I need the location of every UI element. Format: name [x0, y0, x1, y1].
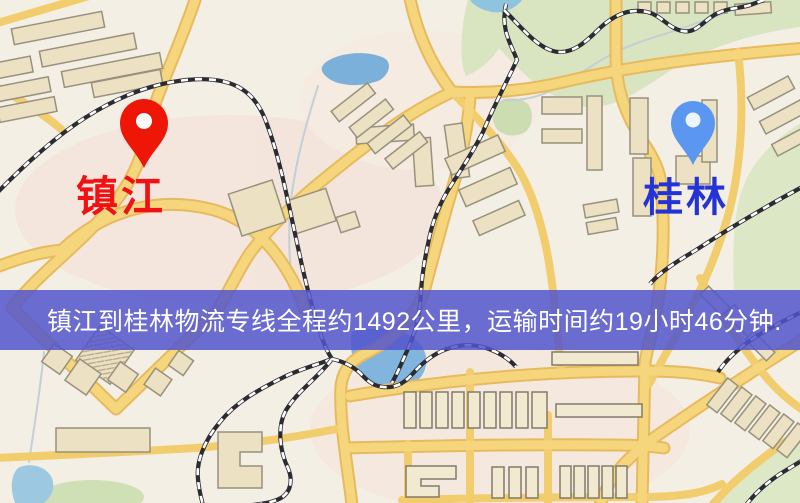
map-canvas [0, 0, 800, 503]
route-info-banner: 镇江到桂林物流专线全程约1492公里，运输时间约19小时46分钟. [0, 290, 800, 350]
park-small-center [493, 98, 532, 135]
guilin-label: 桂林 [643, 178, 729, 218]
zhenjiang-pin-hole [136, 113, 152, 129]
logistics-route-map: 镇江 桂林 镇江到桂林物流专线全程约1492公里，运输时间约19小时46分钟. [0, 0, 800, 503]
zhenjiang-label: 镇江 [76, 176, 166, 218]
route-info-text: 镇江到桂林物流专线全程约1492公里，运输时间约19小时46分钟. [47, 302, 782, 338]
guilin-pin-hole [686, 113, 701, 128]
